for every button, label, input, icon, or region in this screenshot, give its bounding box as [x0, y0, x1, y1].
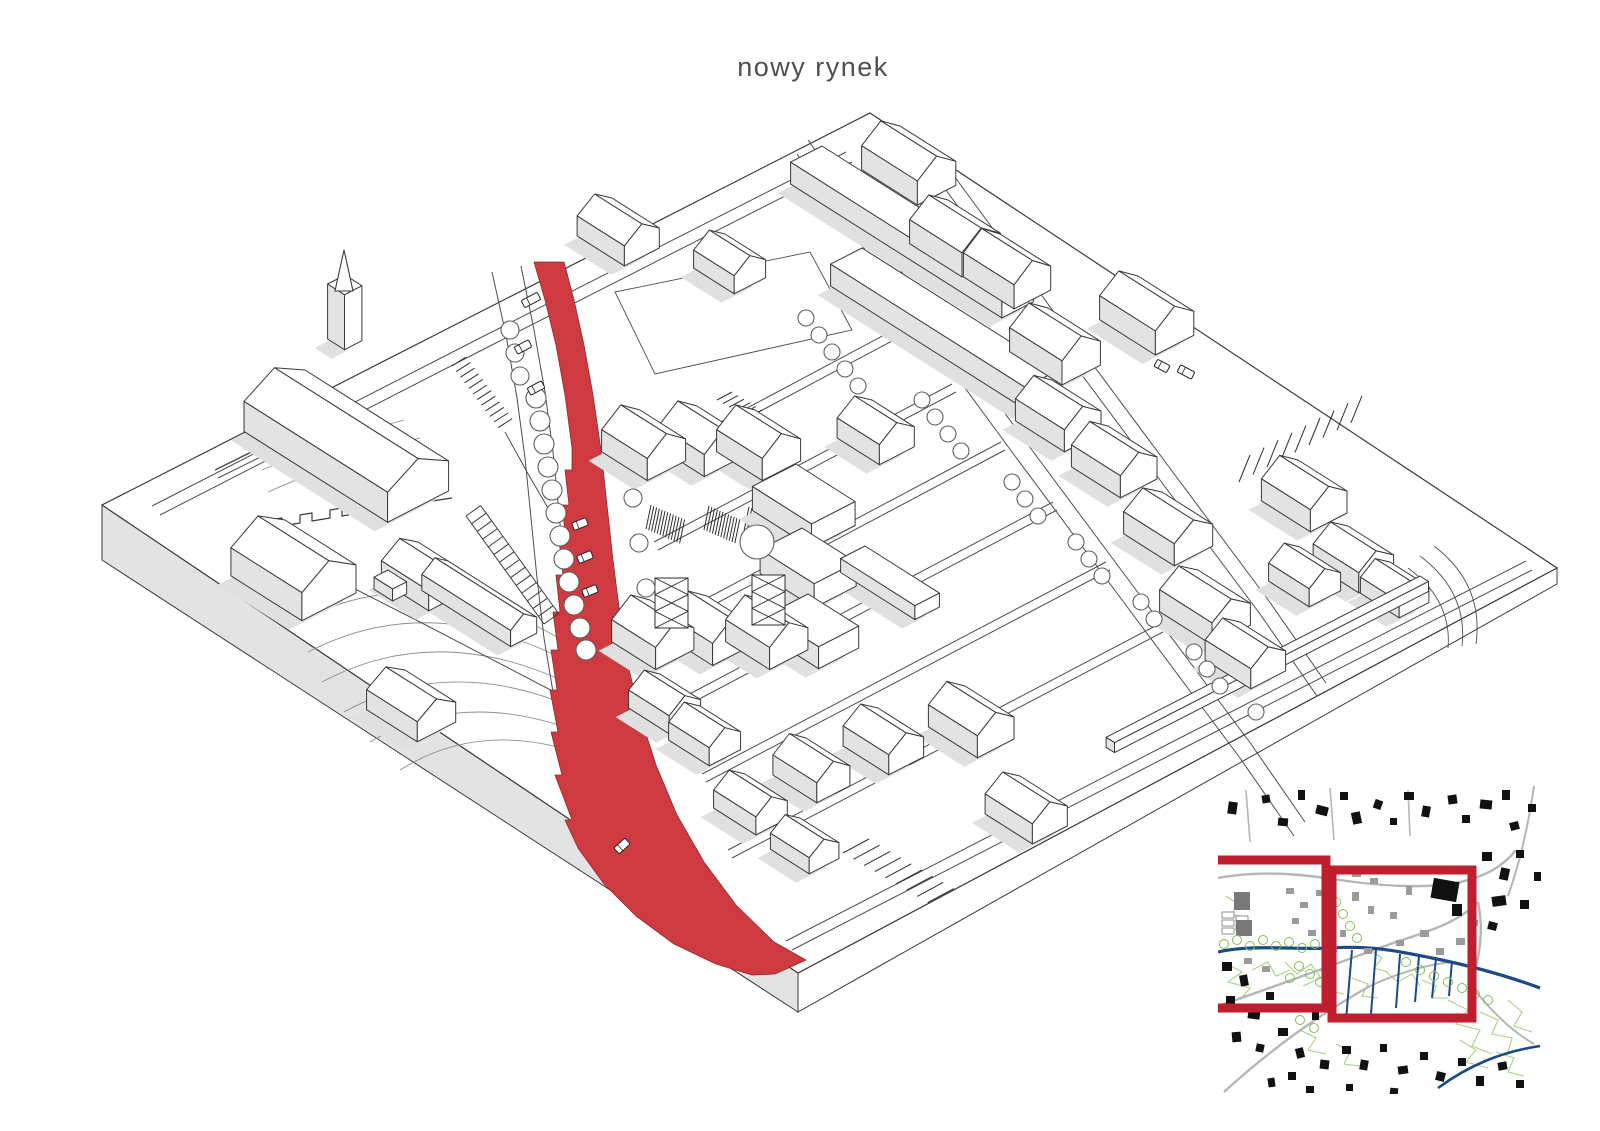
inset-gray-building: [1370, 878, 1378, 884]
inset-gray-building: [1396, 940, 1404, 946]
inset-building: [1239, 974, 1249, 986]
inset-building: [1499, 867, 1510, 881]
inset-building: [1312, 1012, 1319, 1020]
tree: [1068, 534, 1084, 550]
inset-road: [1330, 788, 1334, 840]
inset-building: [1462, 815, 1470, 823]
tree: [837, 361, 853, 377]
inset-tree: [1220, 940, 1229, 949]
inset-building: [1430, 878, 1459, 902]
inset-building: [1346, 1084, 1353, 1091]
inset-tree: [1353, 934, 1362, 943]
inset-building: [1306, 1086, 1314, 1093]
tree: [546, 503, 566, 523]
inset-gray-building: [1234, 892, 1250, 910]
tree: [1017, 491, 1033, 507]
inset-building: [1359, 1059, 1369, 1070]
inset-gray-building: [1236, 920, 1252, 936]
inset-building: [1315, 805, 1329, 817]
inset-building: [1261, 794, 1270, 803]
inset-vegetation: [1386, 972, 1420, 986]
tree: [850, 378, 866, 394]
inset-tree: [1484, 996, 1493, 1005]
inset-building: [1421, 805, 1431, 817]
inset-tree: [1339, 910, 1348, 919]
inset-gray-building: [1244, 958, 1252, 964]
inset-building: [1227, 801, 1238, 814]
tree: [534, 434, 554, 454]
inset-building: [1351, 811, 1362, 825]
inset-gray-building: [1390, 912, 1397, 919]
inset-building: [1528, 804, 1536, 812]
inset-building: [1222, 962, 1232, 971]
inset-tree: [1259, 936, 1268, 945]
inset-building: [1320, 1060, 1330, 1070]
inset-building: [1509, 821, 1520, 831]
tree: [927, 409, 943, 425]
inset-building: [1516, 850, 1524, 858]
inset-gray-building: [1364, 948, 1372, 954]
inset-gray-building: [1262, 966, 1270, 972]
inset-building: [1226, 996, 1235, 1004]
inset-road: [1246, 790, 1250, 842]
tree: [559, 572, 579, 592]
tree: [554, 549, 574, 569]
inset-building: [1390, 818, 1397, 825]
church-spire: [335, 250, 353, 291]
inset-building: [1340, 792, 1348, 800]
inset-building: [1458, 1058, 1466, 1066]
inset-tree: [1285, 938, 1294, 947]
tree: [637, 579, 655, 597]
tree: [576, 640, 596, 660]
inset-building: [1487, 921, 1498, 931]
tree: [1004, 474, 1020, 490]
inset-building: [1404, 792, 1414, 800]
inset-terrace-building: [1222, 920, 1234, 926]
inset-building: [1452, 904, 1462, 916]
tree: [1133, 594, 1149, 610]
inset-building: [1447, 794, 1457, 804]
inset-building: [1491, 895, 1506, 907]
tree: [538, 457, 558, 477]
tree: [953, 443, 969, 459]
hatch-line: [1351, 396, 1362, 423]
tree: [530, 411, 550, 431]
inset-building: [1255, 1043, 1264, 1052]
inset-tree: [1458, 984, 1467, 993]
inset-vegetation: [1422, 980, 1448, 998]
inset-building: [1516, 1080, 1524, 1088]
inset-building: [1288, 1072, 1296, 1080]
inset-building: [1373, 799, 1384, 810]
inset-terrace-building: [1222, 928, 1234, 934]
tree: [940, 426, 956, 442]
inset-building: [1295, 1047, 1305, 1059]
tree: [550, 526, 570, 546]
inset-canal: [1371, 950, 1376, 1014]
tree: [1081, 551, 1097, 567]
inset-building: [1520, 900, 1529, 909]
inset-tree: [1402, 958, 1411, 967]
tree: [624, 489, 642, 507]
tree: [542, 480, 562, 500]
inset-gray-building: [1286, 888, 1294, 894]
inset-vegetation: [1252, 962, 1290, 976]
inset-tree: [1233, 936, 1242, 945]
inset-vegetation: [1300, 1030, 1326, 1054]
inset-terrace-building: [1222, 912, 1234, 918]
inset-gray-building: [1340, 930, 1346, 937]
inset-building: [1435, 1071, 1446, 1082]
inset-gray-building: [1352, 892, 1359, 901]
site-axonometric-drawing: [0, 0, 1600, 1131]
tree: [798, 310, 814, 326]
inset-tree: [1295, 962, 1304, 971]
inset-building: [1278, 1028, 1288, 1036]
inset-gray-building: [1292, 918, 1299, 924]
inset-building: [1480, 799, 1493, 809]
inset-building: [1298, 790, 1305, 800]
tree: [511, 367, 529, 385]
tree: [740, 525, 774, 559]
inset-gray-building: [1300, 902, 1308, 908]
inset-gray-building: [1420, 930, 1429, 937]
inset-building: [1476, 1076, 1484, 1086]
inset-building: [1342, 1046, 1351, 1054]
inset-building: [1420, 1052, 1428, 1060]
inset-building: [1267, 1078, 1275, 1088]
inset-building: [1482, 852, 1492, 861]
inset-tree: [1346, 922, 1355, 931]
tree: [1146, 611, 1162, 627]
inset-building: [1380, 1044, 1387, 1052]
inset-road: [1508, 786, 1534, 896]
inset-tree: [1296, 1016, 1305, 1025]
inset-building: [1390, 1088, 1399, 1096]
inset-building: [1497, 1061, 1507, 1070]
inset-vegetation: [1370, 950, 1388, 972]
inset-tree: [1310, 1024, 1319, 1033]
tree: [1186, 644, 1202, 660]
inset-building: [1266, 992, 1274, 1000]
tree: [811, 327, 827, 343]
tree: [1212, 678, 1228, 694]
wall-southeast: [345, 286, 362, 350]
inset-gray-building: [1456, 938, 1465, 945]
inset-location-map: [1190, 786, 1541, 1095]
inset-gray-building: [1308, 930, 1316, 936]
inset-building: [1278, 818, 1289, 827]
wall-southwest: [328, 284, 345, 350]
inset-building: [1534, 872, 1541, 881]
tree: [1030, 508, 1046, 524]
inset-gray-building: [1436, 948, 1444, 955]
tree: [570, 618, 590, 638]
inset-vegetation: [1480, 1012, 1512, 1052]
tree: [914, 392, 930, 408]
tree: [1199, 661, 1215, 677]
tree: [1248, 704, 1264, 720]
inset-gray-building: [1406, 886, 1412, 895]
inset-building: [1502, 790, 1510, 800]
inset-building: [1397, 1065, 1408, 1074]
tree: [824, 344, 840, 360]
tree: [501, 321, 519, 339]
tree: [1094, 568, 1110, 584]
sheet: nowy rynek: [0, 0, 1600, 1131]
inset-gray-building: [1368, 906, 1374, 914]
tree: [630, 534, 648, 552]
tree: [564, 595, 584, 615]
inset-building: [1232, 1032, 1242, 1043]
inset-focus-frame: [1190, 860, 1326, 1008]
